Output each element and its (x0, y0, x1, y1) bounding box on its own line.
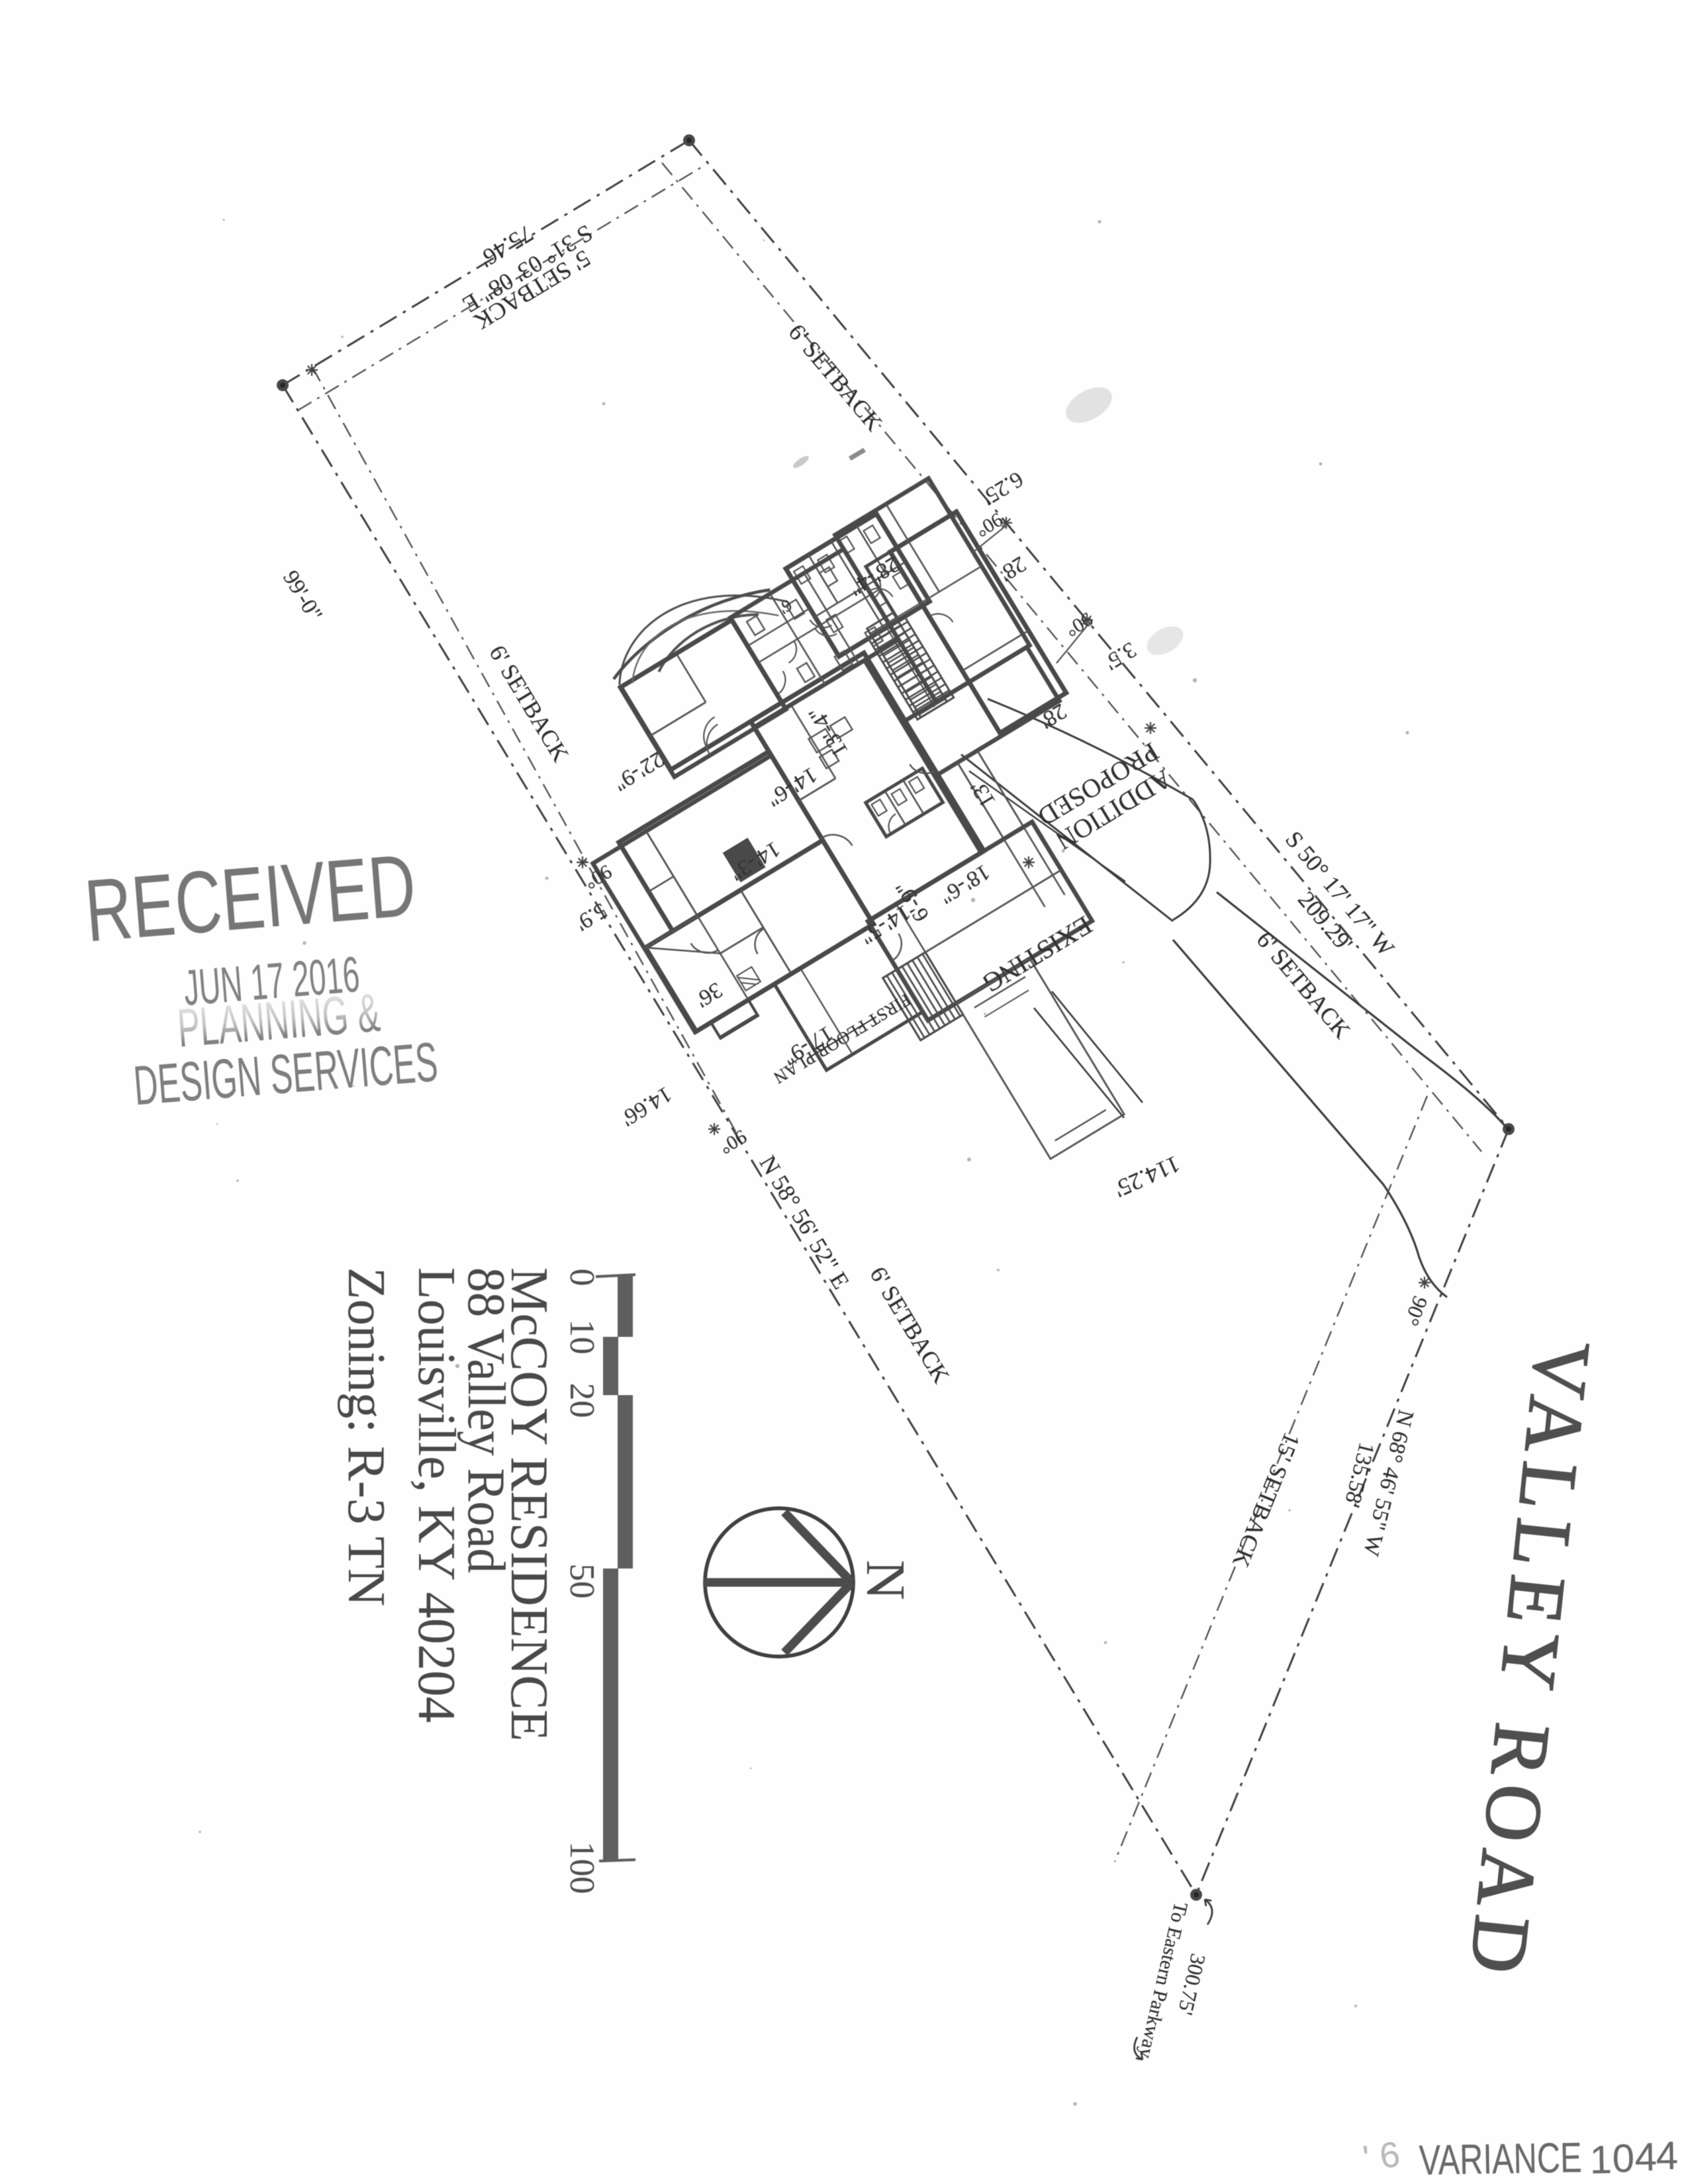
svg-text:0: 0 (1612, 2136, 1635, 2181)
svg-text:4: 4 (1656, 2133, 1679, 2178)
svg-text:1: 1 (1589, 2137, 1613, 2182)
svg-text:4: 4 (1634, 2134, 1658, 2179)
svg-text:' 6: ' 6 (1360, 2134, 1402, 2179)
svg-text:VARIANCE: VARIANCE (1419, 2134, 1582, 2184)
svg-text:Zoning: R-3 TN: Zoning: R-3 TN (337, 1267, 395, 1606)
svg-text:50: 50 (563, 1564, 601, 1599)
svg-text:20: 20 (563, 1383, 601, 1418)
svg-text:10: 10 (563, 1320, 601, 1355)
svg-text:0: 0 (563, 1269, 601, 1287)
svg-text:N: N (855, 1560, 916, 1600)
svg-text:100: 100 (563, 1841, 601, 1894)
svg-text:Louisville, KY 40204: Louisville, KY 40204 (407, 1267, 465, 1723)
